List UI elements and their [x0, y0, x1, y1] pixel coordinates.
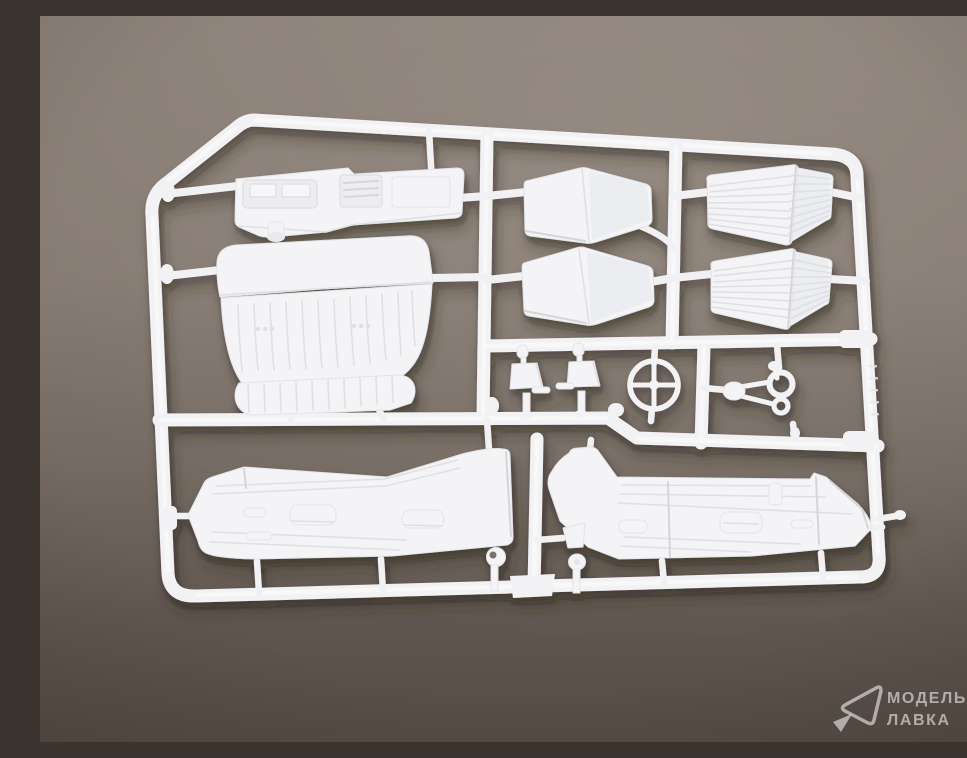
watermark-line1: МОДЕЛЬНАЯ — [887, 690, 967, 707]
photo-canvas: МОДЕЛЬНАЯ ЛАВКА — [40, 16, 967, 742]
watermark-line2: ЛАВКА — [887, 712, 951, 729]
sprue-photo: МОДЕЛЬНАЯ ЛАВКА — [40, 16, 967, 742]
vignette — [40, 16, 967, 742]
